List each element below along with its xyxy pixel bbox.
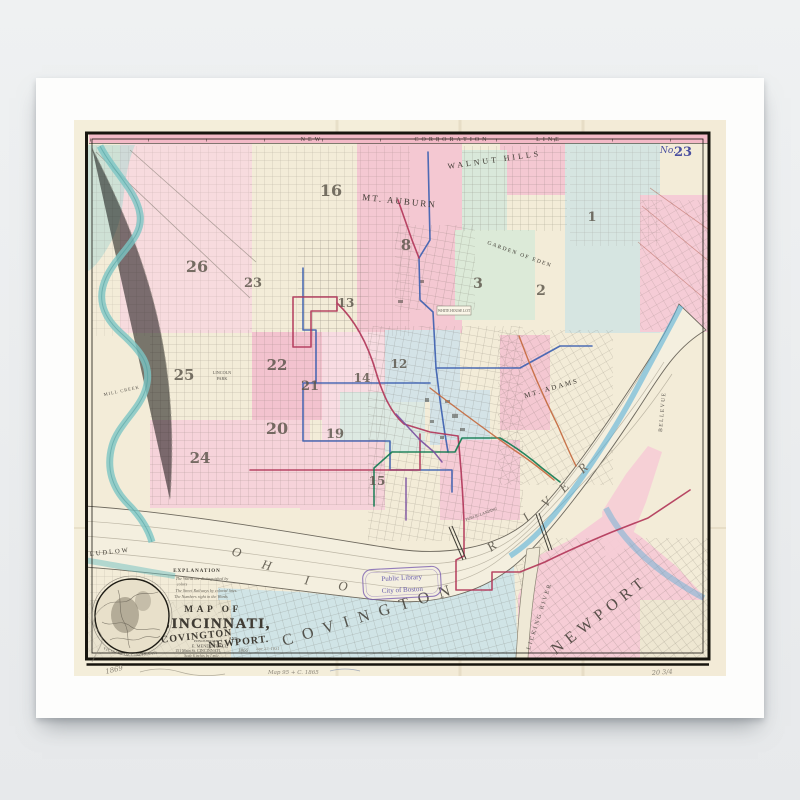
corporation-word-line: LINE [536, 137, 562, 143]
published-by: PUBLISHED BY [194, 639, 219, 643]
ward-number: 22 [267, 356, 288, 374]
ward-number: 21 [301, 379, 319, 394]
explanation-heading: EXPLANATION [173, 569, 221, 574]
title-scale: Scale 6 inches by 1 mile. [184, 654, 220, 658]
explanation-line3: The Street Railways by colored lines [176, 588, 237, 593]
ward-number: 8 [401, 236, 411, 254]
ward-number: 26 [186, 257, 208, 276]
explanation-line4: The Numbers right in the Wards [174, 594, 228, 599]
label-lincoln-park-2: PARK [217, 376, 228, 381]
ward-number: 23 [244, 276, 262, 291]
ward-number: 12 [391, 357, 408, 371]
pencil-size: 20 3/4 [651, 668, 673, 676]
ward-number: 15 [369, 474, 386, 488]
corporation-word-new: NEW [301, 137, 324, 143]
explanation-line2: colors [177, 582, 188, 587]
title-year: 1866 [238, 649, 249, 654]
ward-number: 1 [587, 210, 596, 225]
label-lincoln-park-1: LINCOLN [213, 370, 231, 375]
plate-number: 23 [674, 145, 692, 160]
explanation-line1: The Wards are distinguished by [176, 576, 229, 581]
ward-number: 16 [320, 181, 342, 200]
title-map-of: MAP OF [184, 605, 242, 615]
ward-number: 3 [473, 276, 483, 292]
ward-number: 20 [266, 419, 288, 438]
ward-number: 25 [174, 366, 195, 384]
label-white-house-lot: WHITE HOUSE LOT [438, 309, 471, 313]
ward-number: 19 [326, 427, 344, 442]
corporation-word-corporation: CORPORATION [414, 137, 489, 143]
ward-number: 14 [354, 371, 371, 385]
antique-map: NEW CORPORATION LINE No. 23 WALNUT HILLS… [74, 120, 726, 676]
ward-number: 13 [338, 296, 355, 310]
ohio-letter: O [338, 578, 349, 594]
pencil-catalog: Map 95 + C. 1865 [267, 670, 319, 676]
ward-number: 24 [190, 449, 211, 467]
pencil-date: Apr 27, 1931 [255, 647, 279, 651]
product-photo: NEW CORPORATION LINE No. 23 WALNUT HILLS… [0, 0, 800, 800]
ward-number: 2 [536, 283, 546, 299]
